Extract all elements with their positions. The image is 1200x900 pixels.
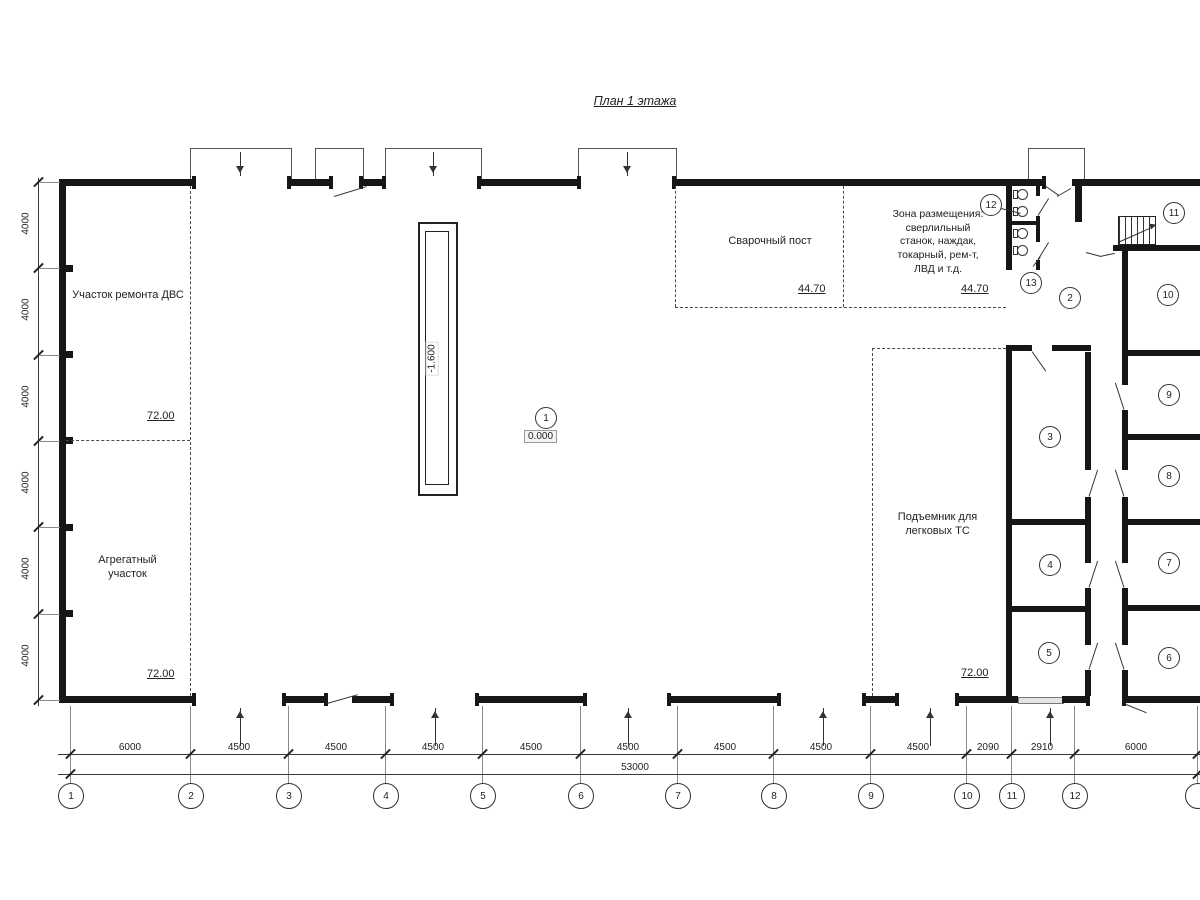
dimension-line [58, 754, 1200, 755]
axis-bubble: 4 [373, 783, 399, 809]
dimension-line [58, 774, 1200, 775]
elevation-mark: 72.00 [147, 410, 175, 422]
dim-label: 6000 [119, 742, 141, 753]
dim-label: 4500 [422, 742, 444, 753]
zone-label-placement: Зона размещения: сверлильный станок, наж… [887, 208, 989, 276]
door-swing-icon [1086, 252, 1101, 257]
elevation-mark: 44.70 [798, 283, 826, 295]
dim-label-left: 4000 [21, 636, 32, 676]
door-swing-icon [1038, 198, 1049, 215]
wall-segment [1085, 497, 1091, 563]
room-number-badge: 8 [1158, 465, 1180, 487]
gate-post [777, 693, 781, 706]
room-number-badge: 9 [1158, 384, 1180, 406]
room-number-badge: 2 [1059, 287, 1081, 309]
room-number-badge: 1 [535, 407, 557, 429]
wall-segment [59, 179, 195, 186]
gate-direction-arrow-icon [435, 708, 436, 746]
axis-bubble: 9 [858, 783, 884, 809]
zone-label-welding: Сварочный пост [705, 234, 835, 248]
window [1018, 697, 1064, 704]
wall-segment [1125, 696, 1200, 703]
stair-arrow-icon [1149, 221, 1160, 230]
wall-segment [1006, 348, 1012, 703]
zone-boundary-dashed [843, 186, 844, 307]
wall-segment [352, 696, 393, 703]
axis-bubble: 1 [58, 783, 84, 809]
wall-segment [1036, 182, 1040, 196]
room-number-badge: 12 [980, 194, 1002, 216]
axis-bubble: 5 [470, 783, 496, 809]
door-swing-icon [1089, 470, 1099, 497]
dim-label: 6000 [1125, 742, 1147, 753]
room-number-badge: 13 [1020, 272, 1042, 294]
dim-label: 4500 [325, 742, 347, 753]
axis-bubble: 3 [276, 783, 302, 809]
dim-label: 4500 [228, 742, 250, 753]
floor-plan-canvas: { "title": "План 1 этажа", "zones": { "e… [0, 0, 1200, 900]
gate-post [475, 693, 479, 706]
extension-line [40, 182, 60, 183]
axis-bubble: 6 [568, 783, 594, 809]
room-number-badge: 5 [1038, 642, 1060, 664]
extension-line [40, 527, 60, 528]
zone-boundary-dashed [190, 186, 191, 696]
door-swing-icon [1100, 253, 1115, 257]
gate-direction-arrow-icon [433, 152, 434, 176]
pilaster [66, 610, 73, 617]
extension-line [40, 614, 60, 615]
wall-segment [1085, 352, 1091, 470]
wall-segment [1006, 606, 1091, 612]
axis-bubble: 7 [665, 783, 691, 809]
room-number-badge: 10 [1157, 284, 1179, 306]
wall-segment [675, 179, 1045, 186]
toilet-fixture-icon [1017, 245, 1028, 256]
dim-label-left: 4000 [21, 549, 32, 589]
wall-segment [1122, 247, 1128, 350]
extension-line [580, 706, 581, 784]
dim-label: 4500 [617, 742, 639, 753]
gate-direction-arrow-icon [823, 708, 824, 746]
gate-post [583, 693, 587, 706]
axis-bubble: 10 [954, 783, 980, 809]
door-swing-icon [1115, 643, 1125, 670]
zone-label-engine-repair: Участок ремонта ДВС [70, 288, 186, 302]
dim-label: 4500 [714, 742, 736, 753]
wall-segment [1122, 670, 1128, 696]
dim-label-left: 4000 [21, 204, 32, 244]
zone-label-car-lift: Подъемник для легковых ТС [880, 510, 995, 539]
extension-line [40, 700, 60, 701]
wall-segment [1128, 519, 1200, 525]
gate-post [667, 693, 671, 706]
door-swing-icon [1057, 188, 1071, 197]
toilet-fixture-icon [1017, 228, 1028, 239]
gate-post [287, 176, 291, 189]
dim-label-left: 4000 [21, 377, 32, 417]
gate-post [862, 693, 866, 706]
elevation-mark: 72.00 [961, 667, 989, 679]
wall-segment [1006, 221, 1040, 225]
axis-bubble: 11 [999, 783, 1025, 809]
zone-boundary-dashed [66, 440, 190, 441]
dim-label: 4500 [810, 742, 832, 753]
extension-line [40, 355, 60, 356]
entrance-porch [1028, 148, 1085, 179]
gate-direction-arrow-icon [627, 152, 628, 176]
door-swing-icon [1032, 351, 1047, 371]
extension-line [40, 268, 60, 269]
wall-segment [1122, 410, 1128, 470]
wall-segment [59, 696, 195, 703]
wall-segment [59, 179, 66, 703]
extension-line [1074, 706, 1075, 784]
elevation-mark: 44.70 [961, 283, 989, 295]
staircase-icon [1118, 216, 1156, 245]
wall-segment [1075, 182, 1082, 222]
extension-line [40, 441, 60, 442]
wall-segment [1085, 588, 1091, 645]
door-swing-icon [1115, 470, 1125, 497]
gate-direction-arrow-icon [930, 708, 931, 746]
wall-segment [478, 696, 585, 703]
dim-label-left: 4000 [21, 290, 32, 330]
gate-post [955, 693, 959, 706]
door-swing-icon [1115, 383, 1125, 410]
gate-post [477, 176, 481, 189]
wall-segment [290, 179, 330, 186]
wall-segment [1085, 670, 1091, 696]
door-swing-icon [1089, 561, 1099, 588]
gate-post [895, 693, 899, 706]
room-number-badge: 7 [1158, 552, 1180, 574]
wall-segment [1128, 434, 1200, 440]
extension-line [966, 706, 967, 784]
wall-segment [1006, 182, 1012, 270]
pilaster [66, 524, 73, 531]
axis-bubble-clipped [1185, 783, 1200, 809]
door-swing-icon [1115, 561, 1125, 588]
gate-direction-arrow-icon [240, 708, 241, 746]
pilaster [66, 265, 73, 272]
gate-post [282, 693, 286, 706]
extension-line [385, 706, 386, 784]
wall-segment [670, 696, 780, 703]
wall-segment [1006, 345, 1032, 351]
wall-segment [1128, 605, 1200, 611]
gate-post [390, 693, 394, 706]
gate-post [192, 693, 196, 706]
gate-post [577, 176, 581, 189]
extension-line [773, 706, 774, 784]
gate-post [329, 176, 333, 189]
gate-direction-arrow-icon [1050, 708, 1051, 746]
wall-segment [1122, 588, 1128, 645]
dim-label: 2910 [1031, 742, 1053, 753]
wall-segment [1052, 345, 1091, 351]
page-title: План 1 этажа [555, 94, 715, 108]
zone-boundary-dashed [675, 186, 676, 307]
dim-label: 4500 [520, 742, 542, 753]
wall-segment [865, 696, 898, 703]
dim-label-left: 4000 [21, 463, 32, 503]
room-number-badge: 3 [1039, 426, 1061, 448]
dim-label: 4500 [907, 742, 929, 753]
extension-line [870, 706, 871, 784]
wall-segment [1128, 350, 1200, 356]
gate-post [324, 693, 328, 706]
room-number-badge: 11 [1163, 202, 1185, 224]
gate-post [382, 176, 386, 189]
axis-bubble: 2 [178, 783, 204, 809]
floor-level-box: 0.000 [524, 430, 557, 443]
gate-post [192, 176, 196, 189]
wall-segment [1122, 497, 1128, 563]
door-canopy [315, 148, 364, 179]
wall-segment [1036, 216, 1040, 242]
extension-line [190, 706, 191, 784]
door-swing-icon [334, 186, 367, 197]
zone-boundary-dashed [872, 348, 873, 696]
gate-direction-arrow-icon [628, 708, 629, 746]
gate-direction-arrow-icon [240, 152, 241, 176]
zone-boundary-dashed [872, 348, 1006, 349]
zone-boundary-dashed [675, 307, 1006, 308]
extension-line [677, 706, 678, 784]
wall-segment [480, 179, 580, 186]
room-number-badge: 6 [1158, 647, 1180, 669]
axis-bubble: 12 [1062, 783, 1088, 809]
dim-label: 2090 [977, 742, 999, 753]
extension-line [1011, 706, 1012, 784]
wall-segment [285, 696, 325, 703]
elevation-mark: 72.00 [147, 668, 175, 680]
door-swing-icon [1089, 643, 1099, 670]
room-number-badge: 4 [1039, 554, 1061, 576]
pilaster [66, 351, 73, 358]
wall-segment [1006, 519, 1091, 525]
extension-line [482, 706, 483, 784]
zone-label-aggregate: Агрегатный участок [85, 553, 170, 582]
door-swing-icon [1126, 704, 1147, 713]
dim-label-total: 53000 [621, 762, 649, 773]
wall-segment [1072, 179, 1200, 186]
pit-depth-label: -1.600 [426, 341, 439, 375]
toilet-fixture-icon [1017, 189, 1028, 200]
axis-bubble: 8 [761, 783, 787, 809]
extension-line [288, 706, 289, 784]
